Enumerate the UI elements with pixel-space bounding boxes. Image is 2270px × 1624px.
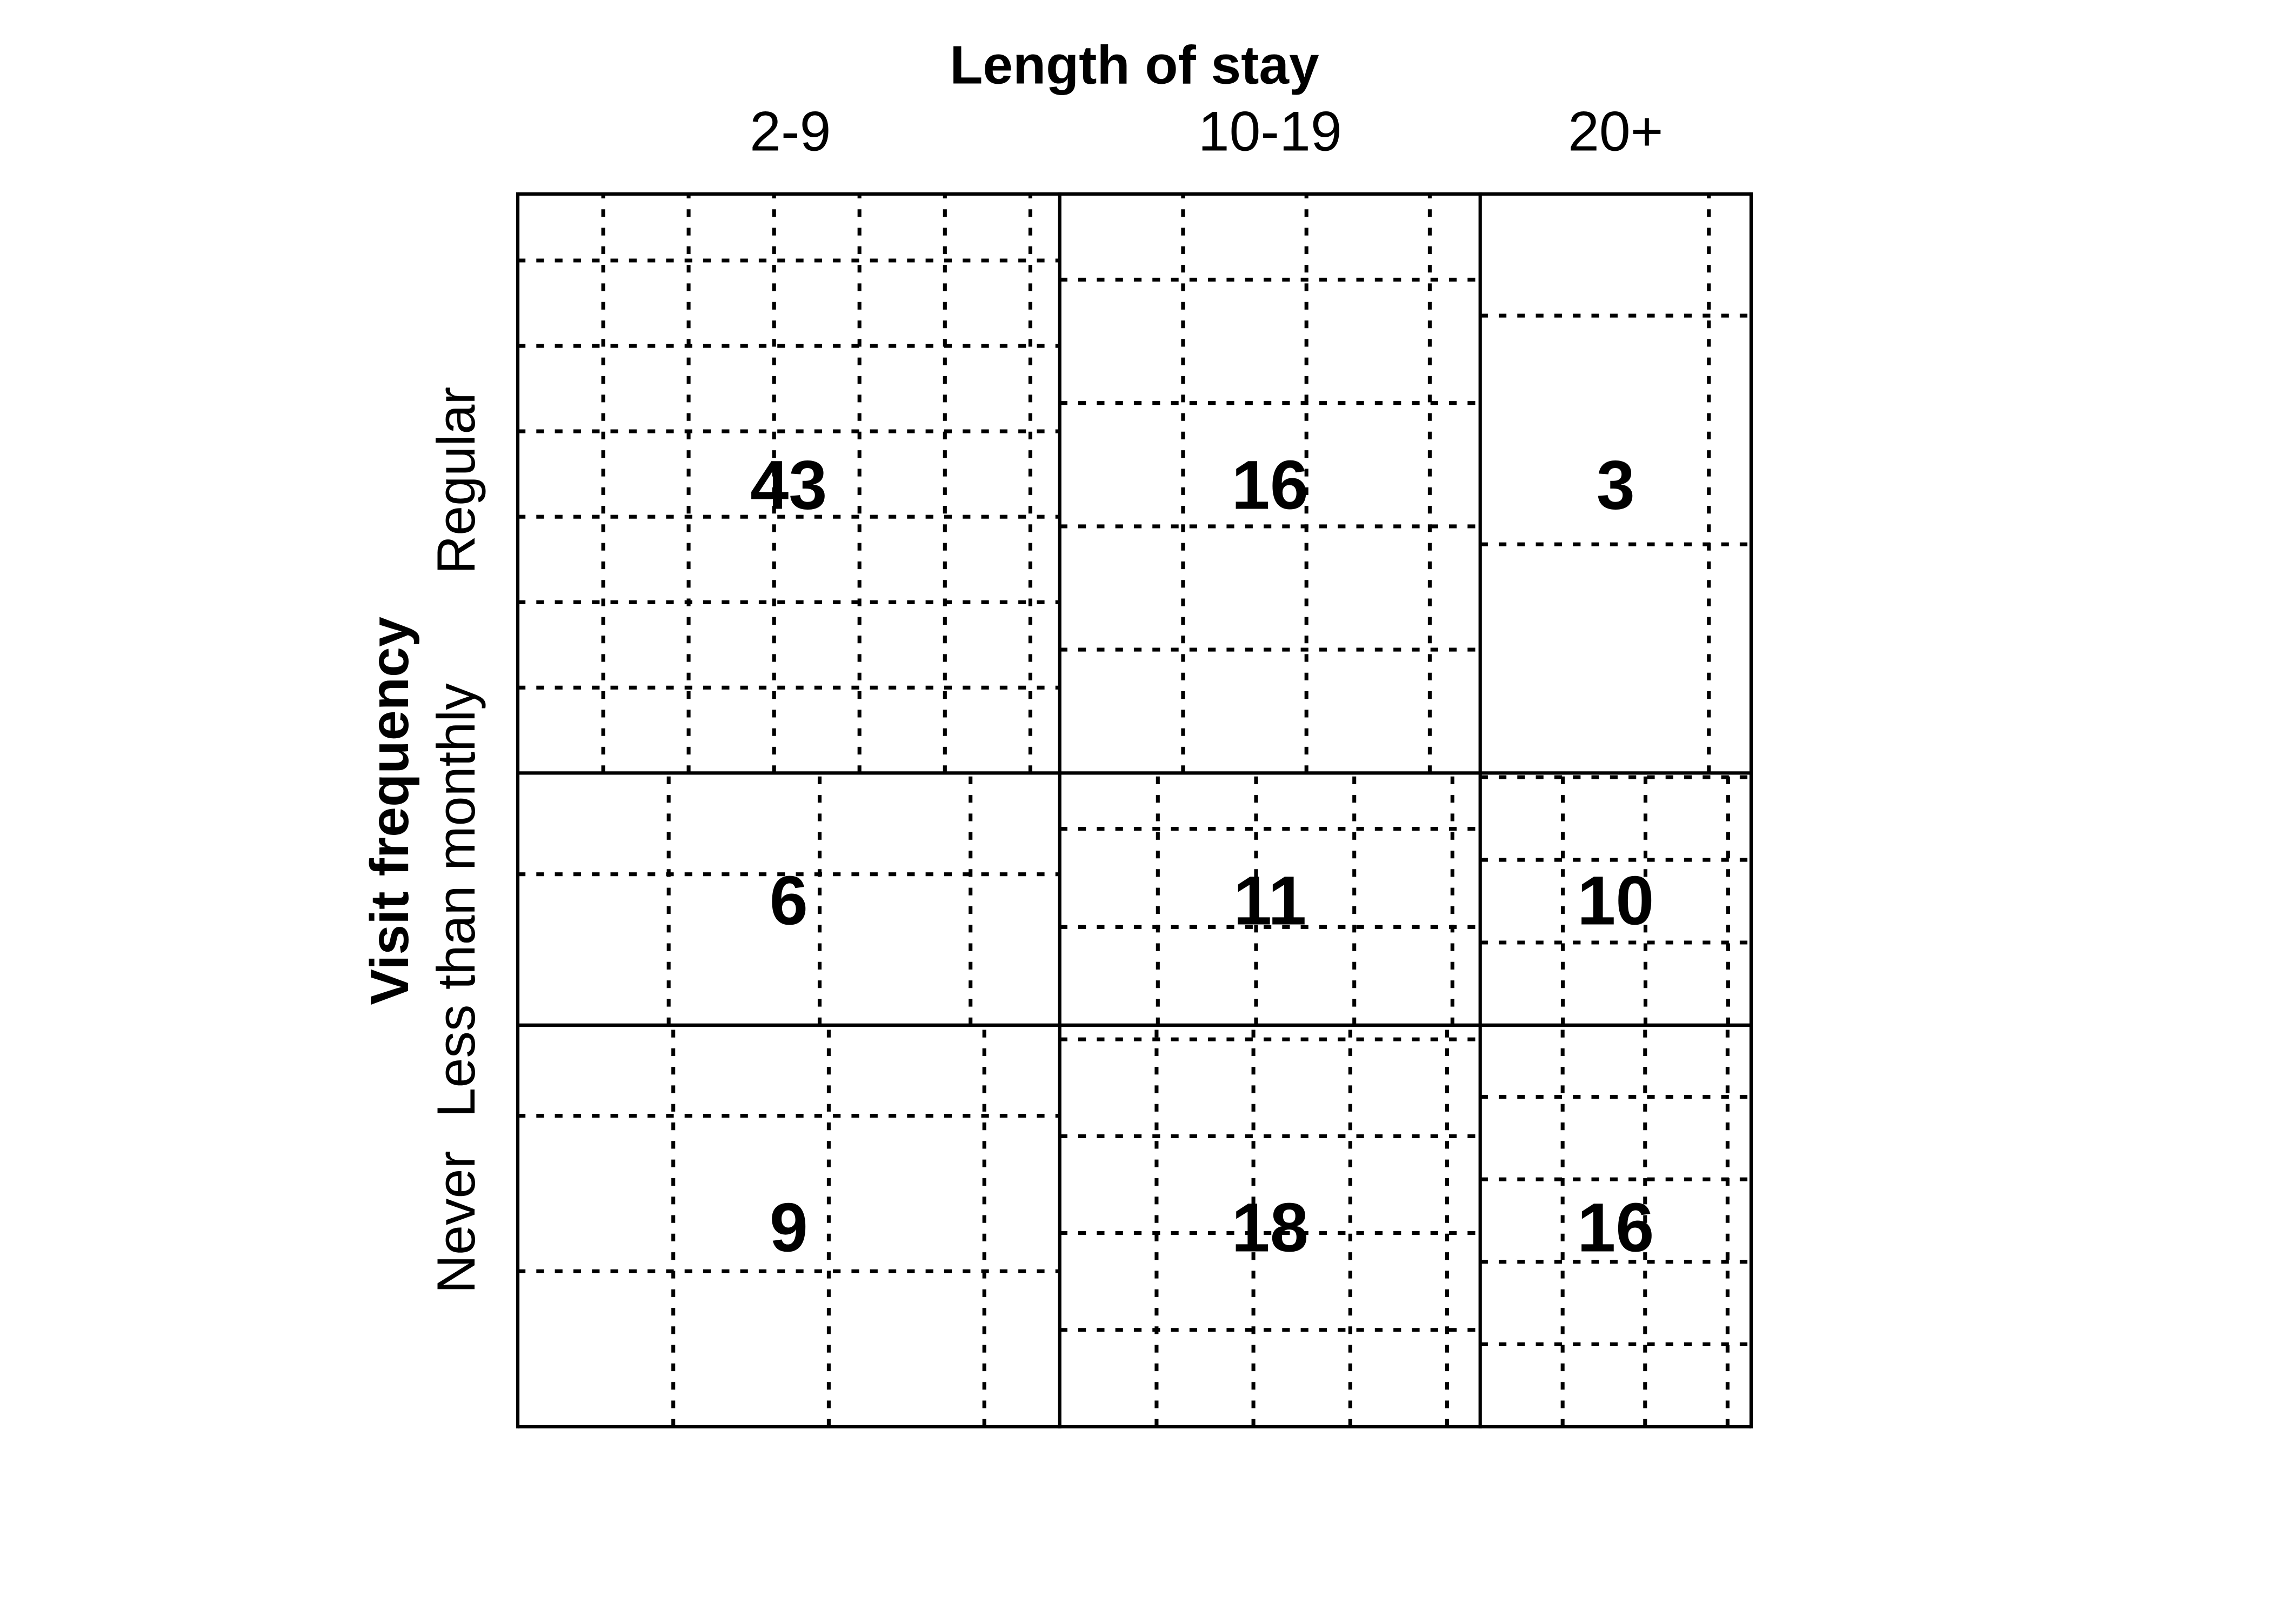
svg-text:6: 6 xyxy=(770,863,808,940)
svg-text:Visit frequency: Visit frequency xyxy=(359,617,420,1005)
svg-text:11: 11 xyxy=(1233,863,1306,940)
svg-text:16: 16 xyxy=(1577,1189,1654,1267)
svg-text:9: 9 xyxy=(770,1189,808,1267)
svg-text:20+: 20+ xyxy=(1568,101,1663,163)
svg-text:18: 18 xyxy=(1232,1189,1308,1267)
svg-text:Regular: Regular xyxy=(426,387,486,574)
svg-text:10-19: 10-19 xyxy=(1198,101,1342,163)
svg-text:Never: Never xyxy=(426,1151,486,1293)
svg-text:10: 10 xyxy=(1577,863,1654,940)
svg-text:Length of stay: Length of stay xyxy=(950,35,1319,96)
svg-text:2-9: 2-9 xyxy=(750,101,831,163)
svg-text:3: 3 xyxy=(1597,447,1635,524)
svg-text:43: 43 xyxy=(750,447,827,524)
svg-text:16: 16 xyxy=(1232,447,1308,524)
svg-text:Less than monthly: Less than monthly xyxy=(426,683,486,1118)
